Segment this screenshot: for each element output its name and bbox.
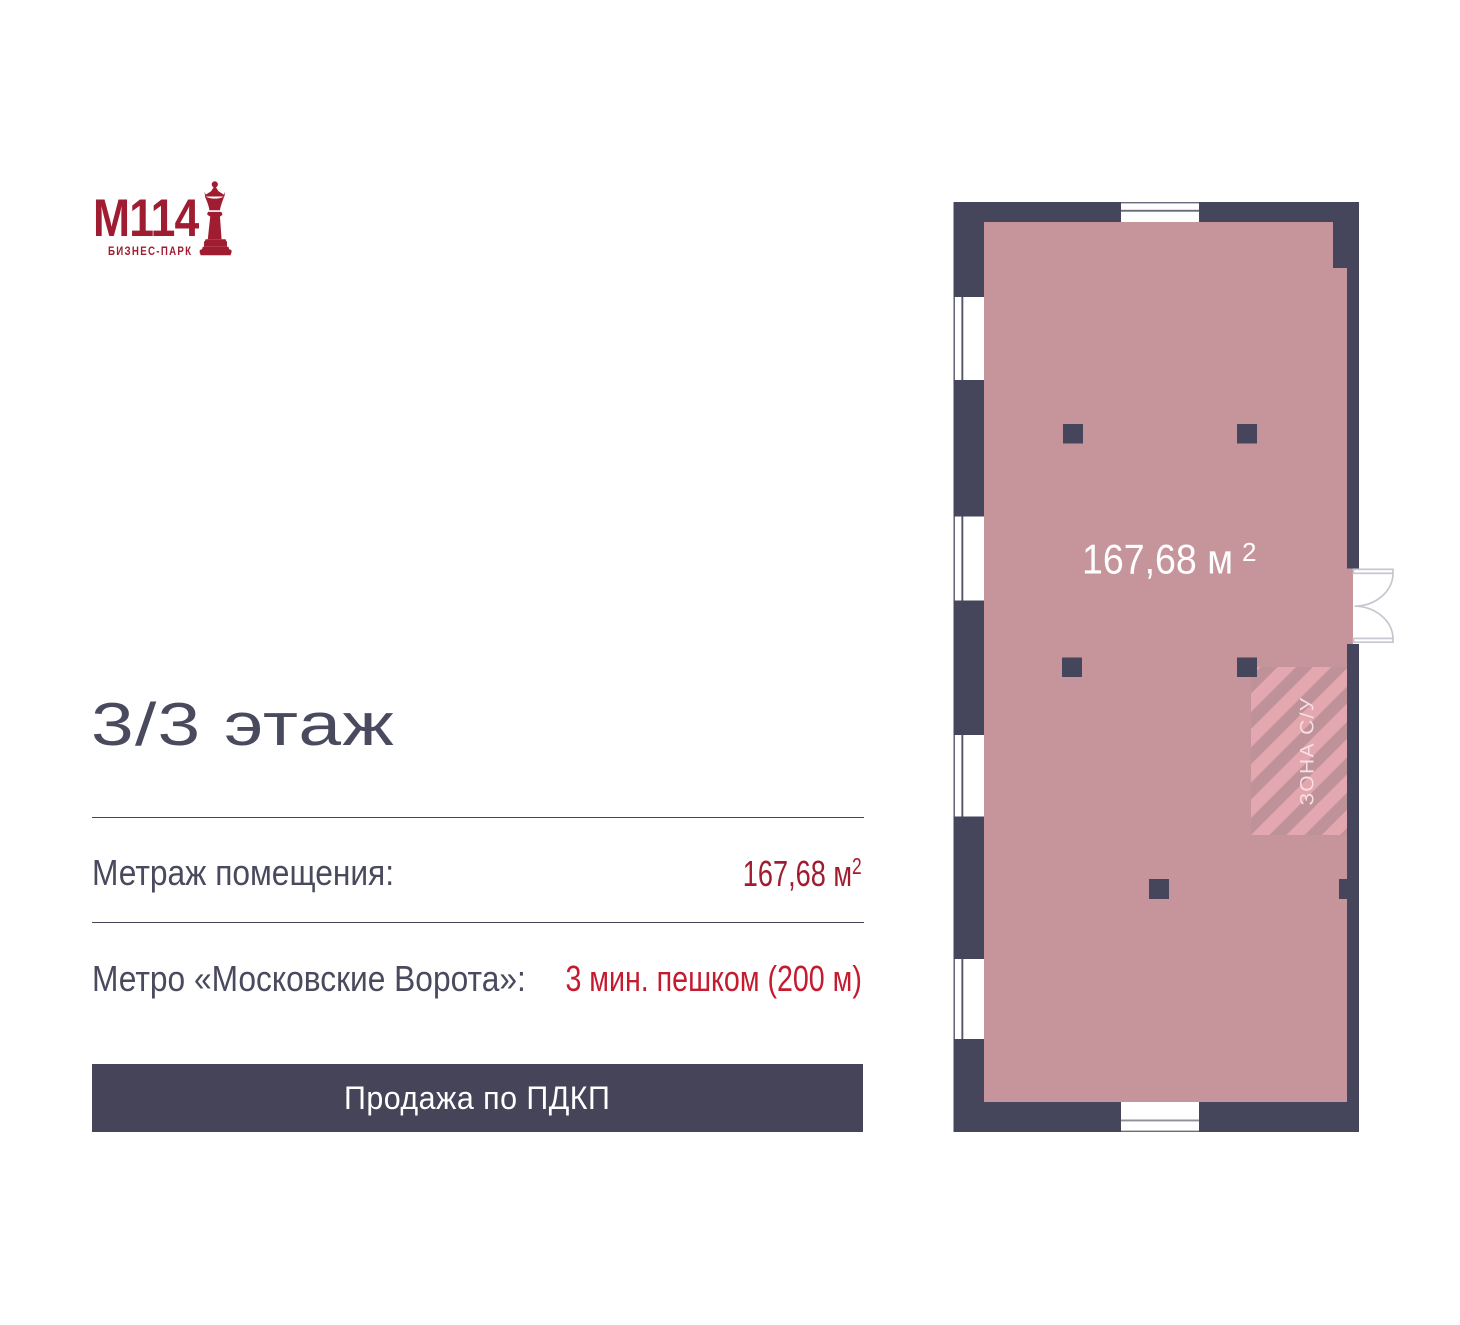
svg-text:2: 2 — [1242, 537, 1256, 567]
svg-text:167,68 м: 167,68 м — [1082, 536, 1233, 583]
svg-text:ЗОНА С/У: ЗОНА С/У — [1298, 697, 1319, 806]
